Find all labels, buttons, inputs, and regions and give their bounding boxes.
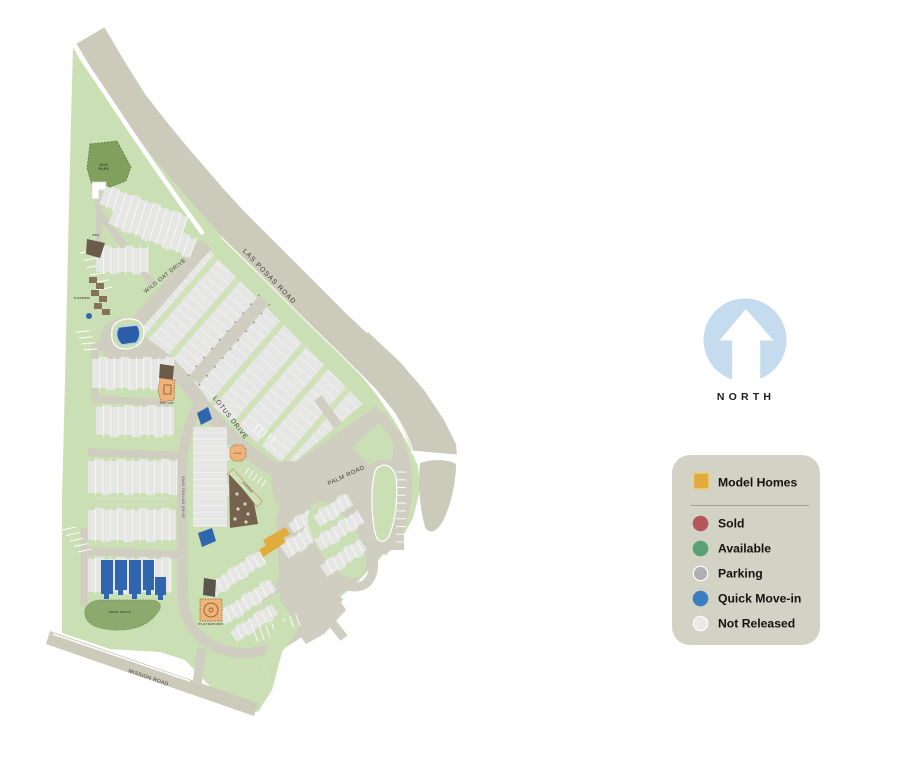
svg-text:NORTH: NORTH: [717, 391, 775, 403]
svg-text:Not Released: Not Released: [718, 617, 795, 631]
svg-text:PLAYGROUND: PLAYGROUND: [199, 622, 224, 626]
svg-text:Available: Available: [718, 542, 771, 556]
svg-text:Parking: Parking: [718, 567, 763, 581]
svg-text:TOT LOT: TOT LOT: [160, 401, 175, 405]
svg-text:GARDEN: GARDEN: [74, 296, 90, 300]
svg-text:PLAY: PLAY: [234, 452, 242, 455]
svg-text:SAND DOLLAR DRIVE: SAND DOLLAR DRIVE: [181, 476, 185, 519]
svg-text:OPEN SPACE: OPEN SPACE: [109, 610, 131, 614]
svg-text:Quick Move-in: Quick Move-in: [718, 592, 801, 606]
svg-text:BBQ: BBQ: [93, 234, 100, 237]
svg-text:Model Homes: Model Homes: [718, 476, 797, 490]
svg-text:PARK: PARK: [99, 167, 110, 171]
svg-text:Sold: Sold: [718, 517, 744, 531]
